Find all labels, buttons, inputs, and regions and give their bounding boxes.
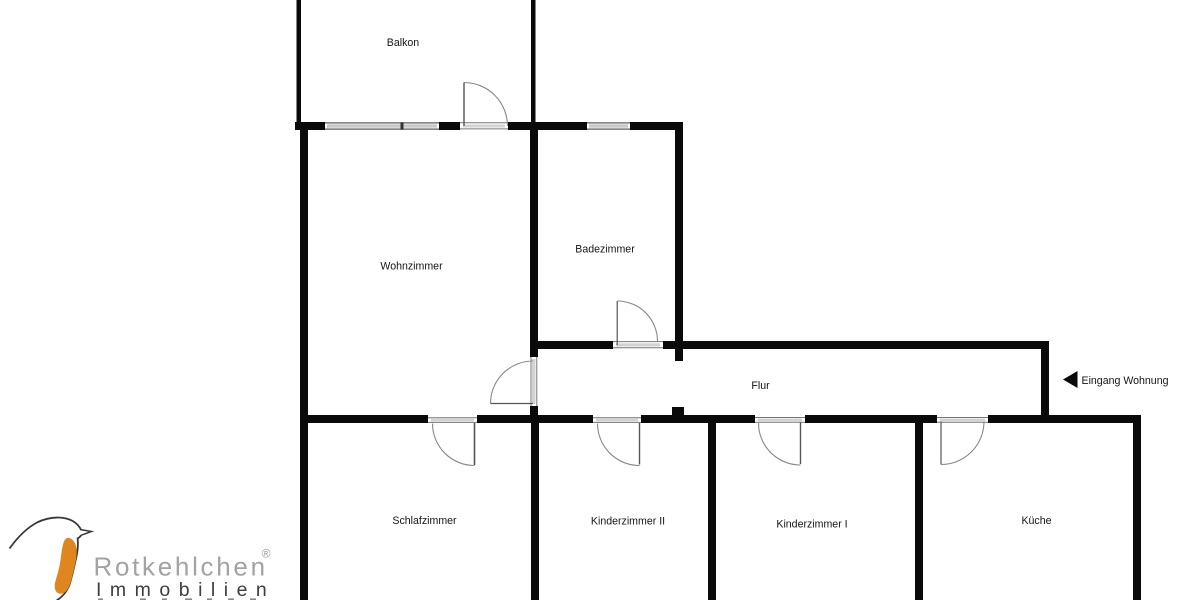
- svg-text:Wohnzimmer: Wohnzimmer: [380, 261, 443, 273]
- svg-text:Küche: Küche: [1021, 515, 1051, 527]
- svg-text:®: ®: [262, 547, 271, 561]
- svg-text:Rotkehlchen: Rotkehlchen: [94, 552, 268, 582]
- svg-text:Balkon: Balkon: [387, 37, 419, 49]
- svg-text:Schlafzimmer: Schlafzimmer: [392, 515, 457, 527]
- svg-text:Kinderzimmer I: Kinderzimmer I: [776, 519, 847, 531]
- svg-text:Flur: Flur: [751, 380, 770, 392]
- svg-text:Eingang Wohnung: Eingang Wohnung: [1082, 375, 1169, 387]
- svg-text:Kinderzimmer II: Kinderzimmer II: [591, 516, 665, 528]
- svg-text:Badezimmer: Badezimmer: [575, 244, 635, 256]
- svg-text:Immobilien: Immobilien: [96, 579, 275, 600]
